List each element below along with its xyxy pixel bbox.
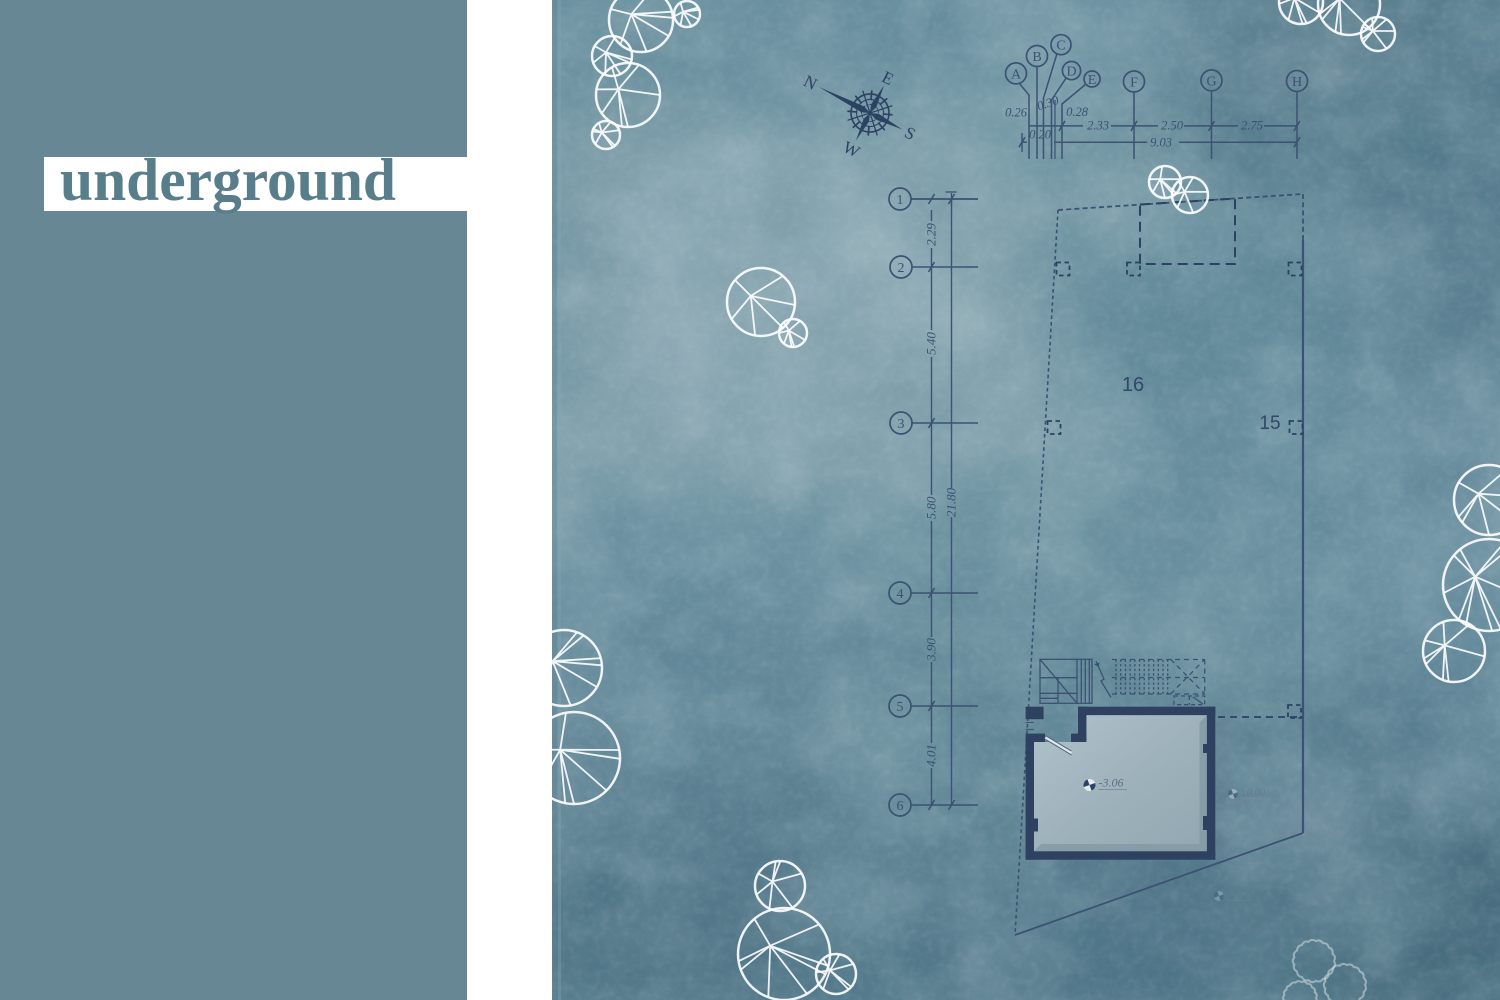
svg-text:G: G xyxy=(1206,74,1216,89)
svg-text:H: H xyxy=(1292,75,1302,90)
svg-text:A: A xyxy=(1011,67,1022,82)
svg-text:16: 16 xyxy=(1122,374,1144,396)
svg-text:0.26: 0.26 xyxy=(1005,106,1028,120)
svg-text:2.29: 2.29 xyxy=(924,223,939,246)
svg-text:6: 6 xyxy=(897,799,904,814)
svg-text:5.80: 5.80 xyxy=(924,496,939,519)
svg-text:1: 1 xyxy=(897,193,904,208)
svg-text:0.20: 0.20 xyxy=(1029,128,1052,142)
svg-text:3: 3 xyxy=(898,417,905,432)
svg-text:21.80: 21.80 xyxy=(944,487,959,517)
svg-text:5.40: 5.40 xyxy=(924,332,939,355)
svg-text:15: 15 xyxy=(1259,413,1280,434)
svg-text:2.33: 2.33 xyxy=(1087,119,1109,133)
svg-text:C: C xyxy=(1056,39,1065,54)
svg-text:3.90: 3.90 xyxy=(924,638,939,662)
svg-text:9.03: 9.03 xyxy=(1150,136,1172,150)
svg-text:E: E xyxy=(1088,73,1097,88)
svg-text:4.01: 4.01 xyxy=(924,744,939,767)
svg-text:2: 2 xyxy=(898,261,905,276)
svg-text:5: 5 xyxy=(897,700,904,715)
svg-text:-3.06: -3.06 xyxy=(1099,776,1124,790)
svg-text:B: B xyxy=(1032,50,1041,65)
svg-text:D: D xyxy=(1066,65,1076,80)
svg-text:F: F xyxy=(1130,75,1138,90)
svg-text:underground: underground xyxy=(60,147,396,213)
svg-text:4: 4 xyxy=(897,587,904,602)
svg-text:0.28: 0.28 xyxy=(1066,105,1089,119)
svg-text:2.75: 2.75 xyxy=(1241,119,1263,133)
svg-text:±0.00: ±0.00 xyxy=(1241,788,1266,799)
svg-text:±0.00: ±0.00 xyxy=(1227,890,1252,901)
svg-text:2.50: 2.50 xyxy=(1161,119,1184,133)
